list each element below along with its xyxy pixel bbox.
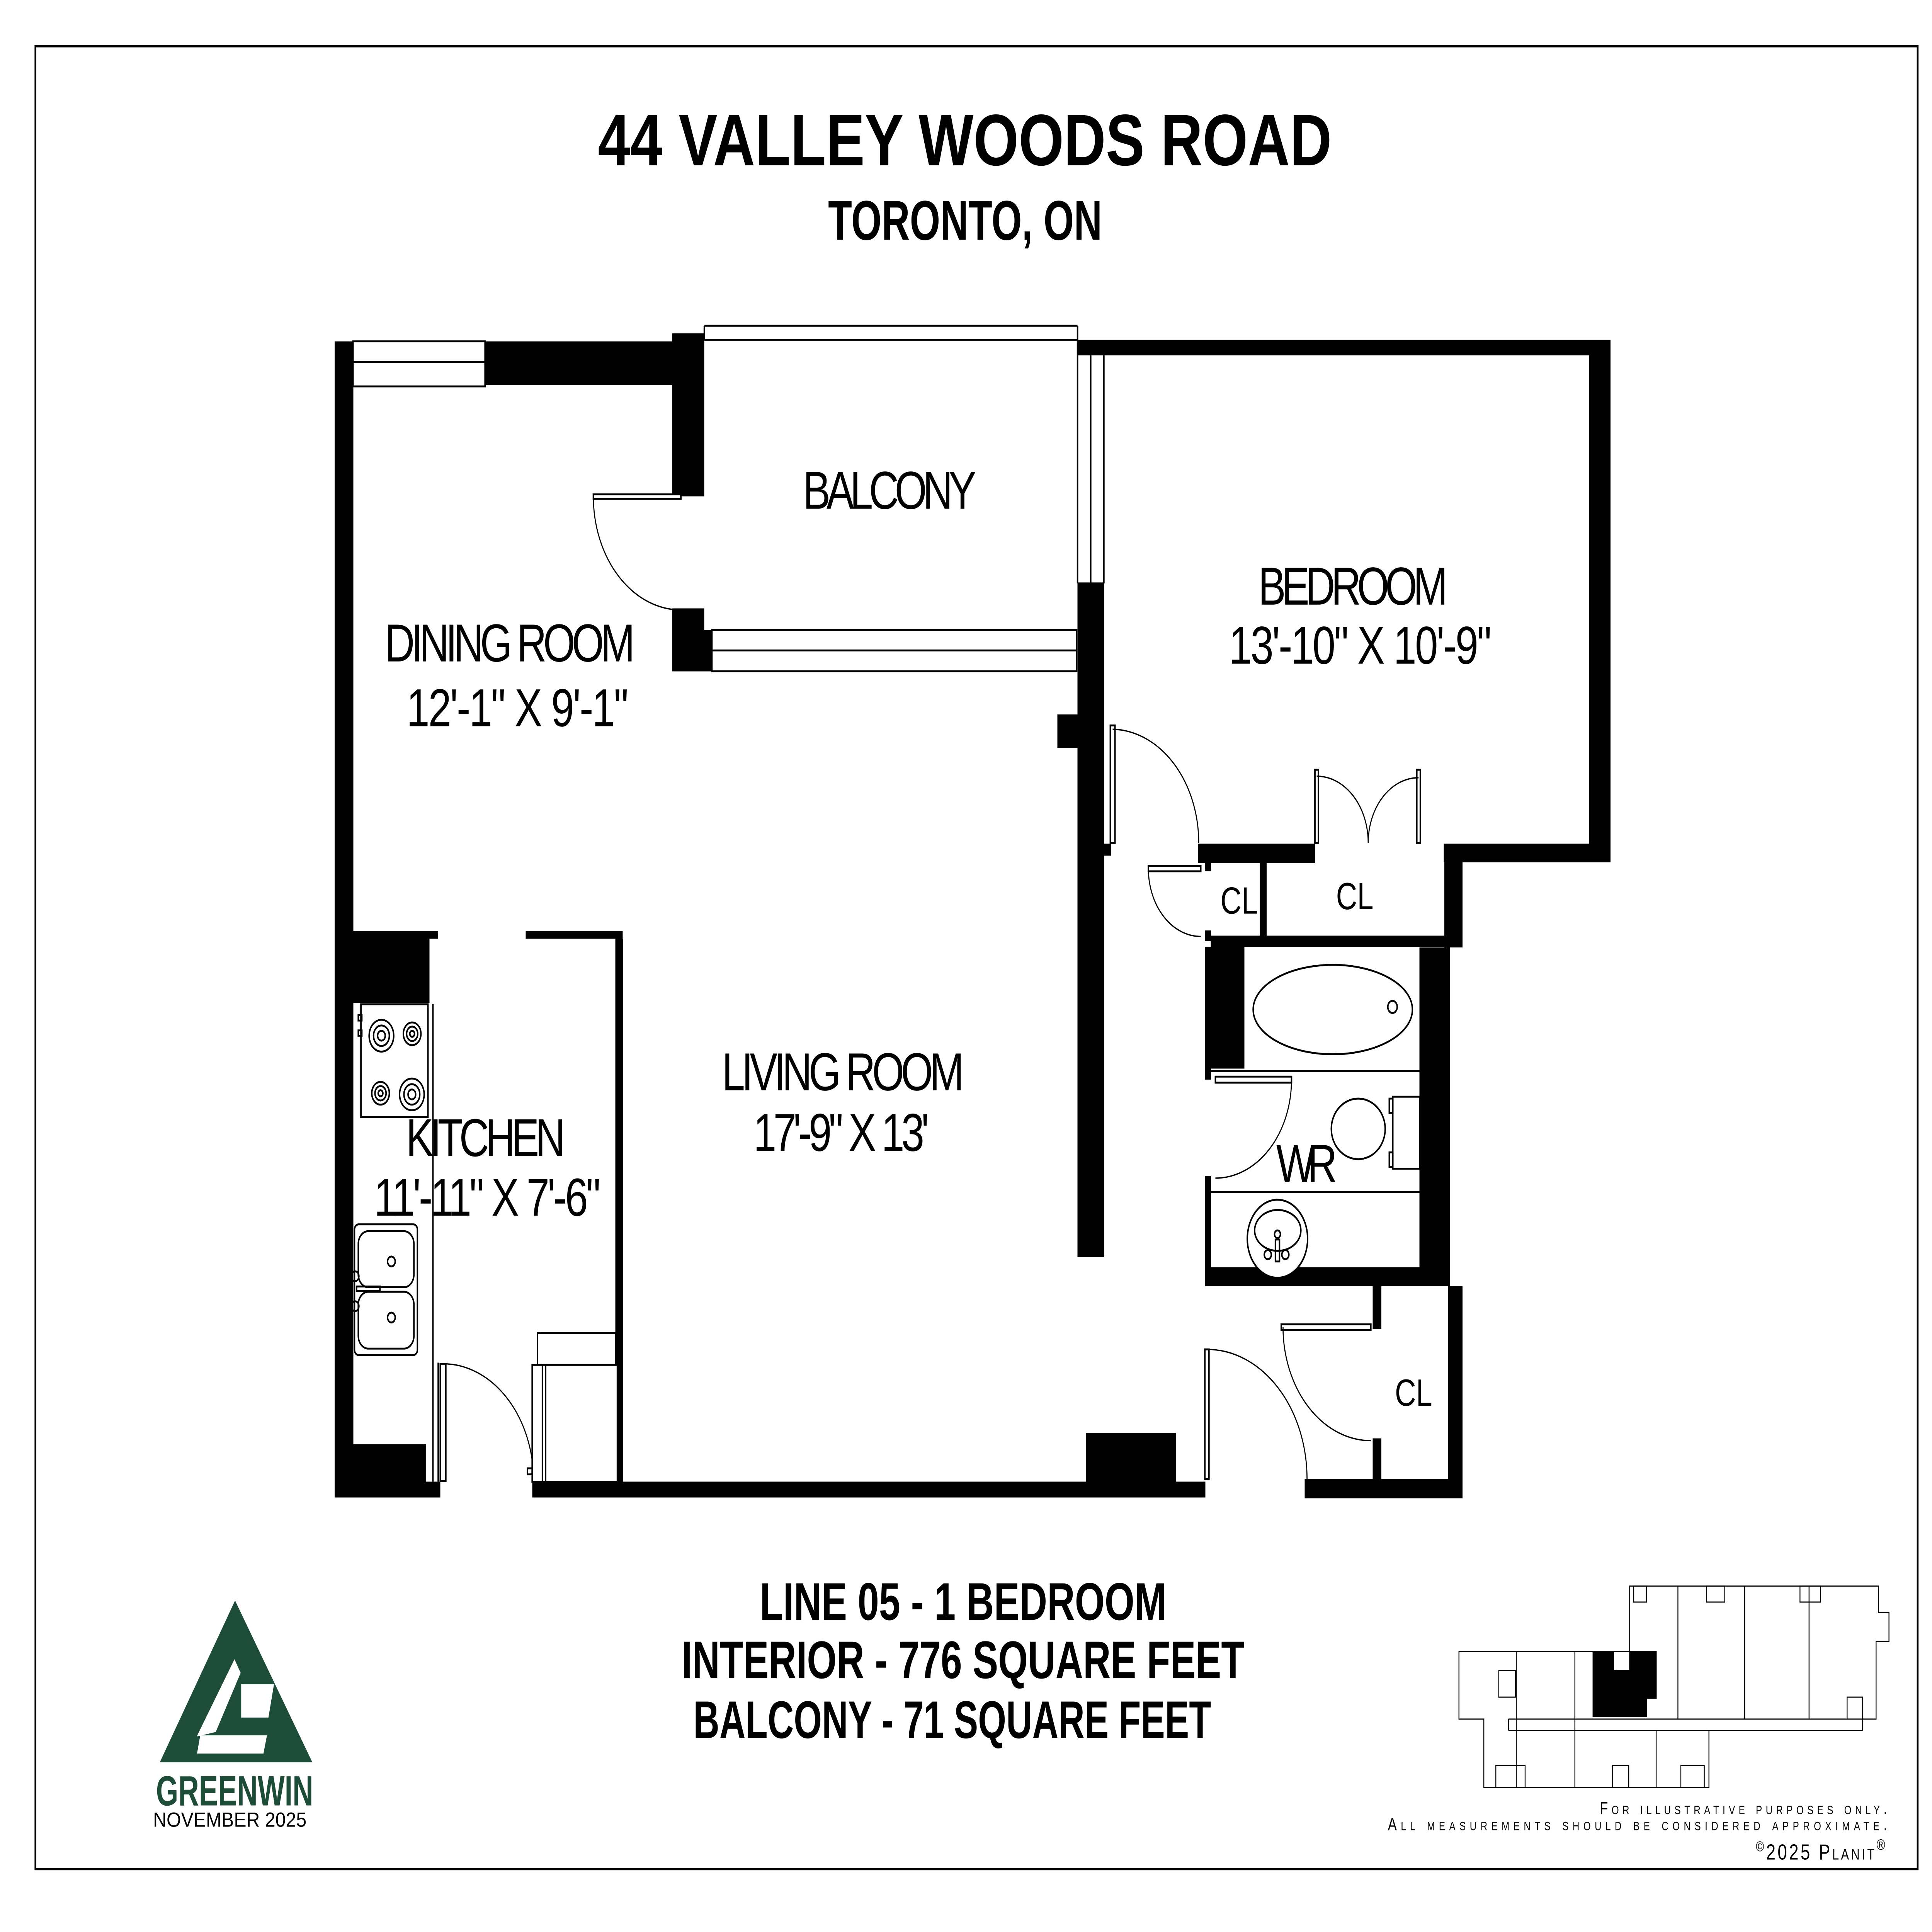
svg-text:GREENWIN: GREENWIN [156, 1767, 313, 1815]
svg-text:44 VALLEY WOODS ROAD: 44 VALLEY WOODS ROAD [598, 99, 1332, 180]
svg-text:CL: CL [1395, 1372, 1432, 1414]
svg-text:CL: CL [1336, 875, 1374, 918]
svg-text:CL: CL [1220, 879, 1258, 922]
svg-text:TORONTO, ON: TORONTO, ON [828, 190, 1102, 252]
svg-text:11'-11" X 7'-6": 11'-11" X 7'-6" [374, 1168, 600, 1227]
svg-text:KITCHEN: KITCHEN [406, 1108, 565, 1168]
svg-text:LIVING ROOM: LIVING ROOM [722, 1042, 964, 1102]
svg-text:BEDROOM: BEDROOM [1258, 556, 1447, 616]
svg-text:BALCONY: BALCONY [803, 461, 976, 520]
svg-text:17'-9" X 13': 17'-9" X 13' [753, 1103, 929, 1162]
svg-text:INTERIOR - 776 SQUARE FEET: INTERIOR - 776 SQUARE FEET [682, 1630, 1245, 1689]
svg-text:13'-10" X 10'-9": 13'-10" X 10'-9" [1229, 616, 1492, 675]
svg-text:WR: WR [1276, 1134, 1337, 1194]
svg-text:©2025 Planit®: ©2025 Planit® [1756, 1837, 1887, 1864]
svg-text:LINE 05 - 1 BEDROOM: LINE 05 - 1 BEDROOM [760, 1572, 1166, 1631]
svg-text:BALCONY - 71 SQUARE FEET: BALCONY - 71 SQUARE FEET [693, 1690, 1211, 1749]
svg-text:NOVEMBER 2025: NOVEMBER 2025 [153, 1808, 306, 1831]
svg-text:DINING ROOM: DINING ROOM [385, 614, 635, 673]
svg-text:12'-1" X 9'-1": 12'-1" X 9'-1" [406, 678, 628, 738]
